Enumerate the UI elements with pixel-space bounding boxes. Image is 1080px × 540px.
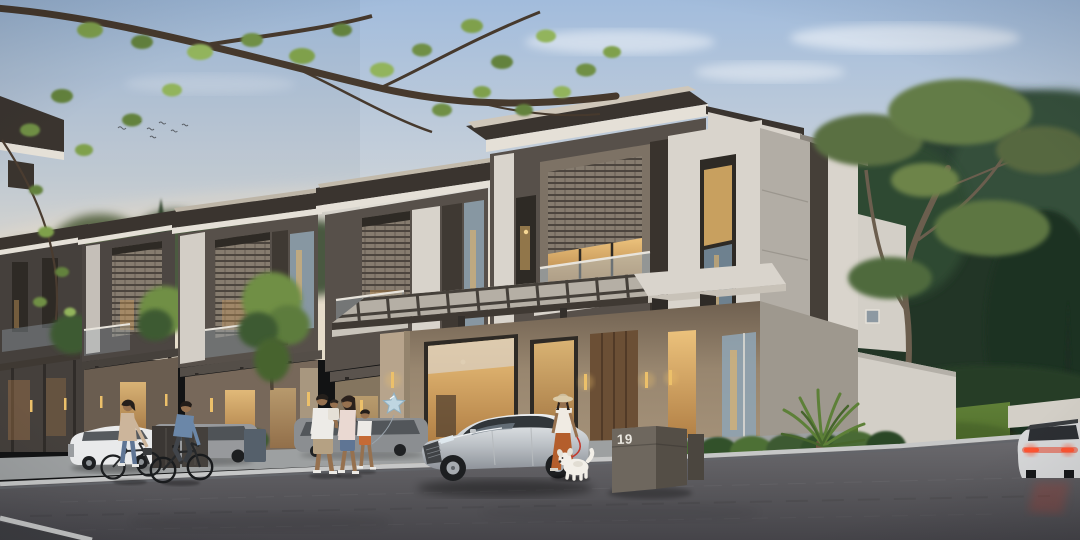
vignette (0, 0, 1080, 540)
scene-architectural-rendering: 19 (0, 0, 1080, 540)
